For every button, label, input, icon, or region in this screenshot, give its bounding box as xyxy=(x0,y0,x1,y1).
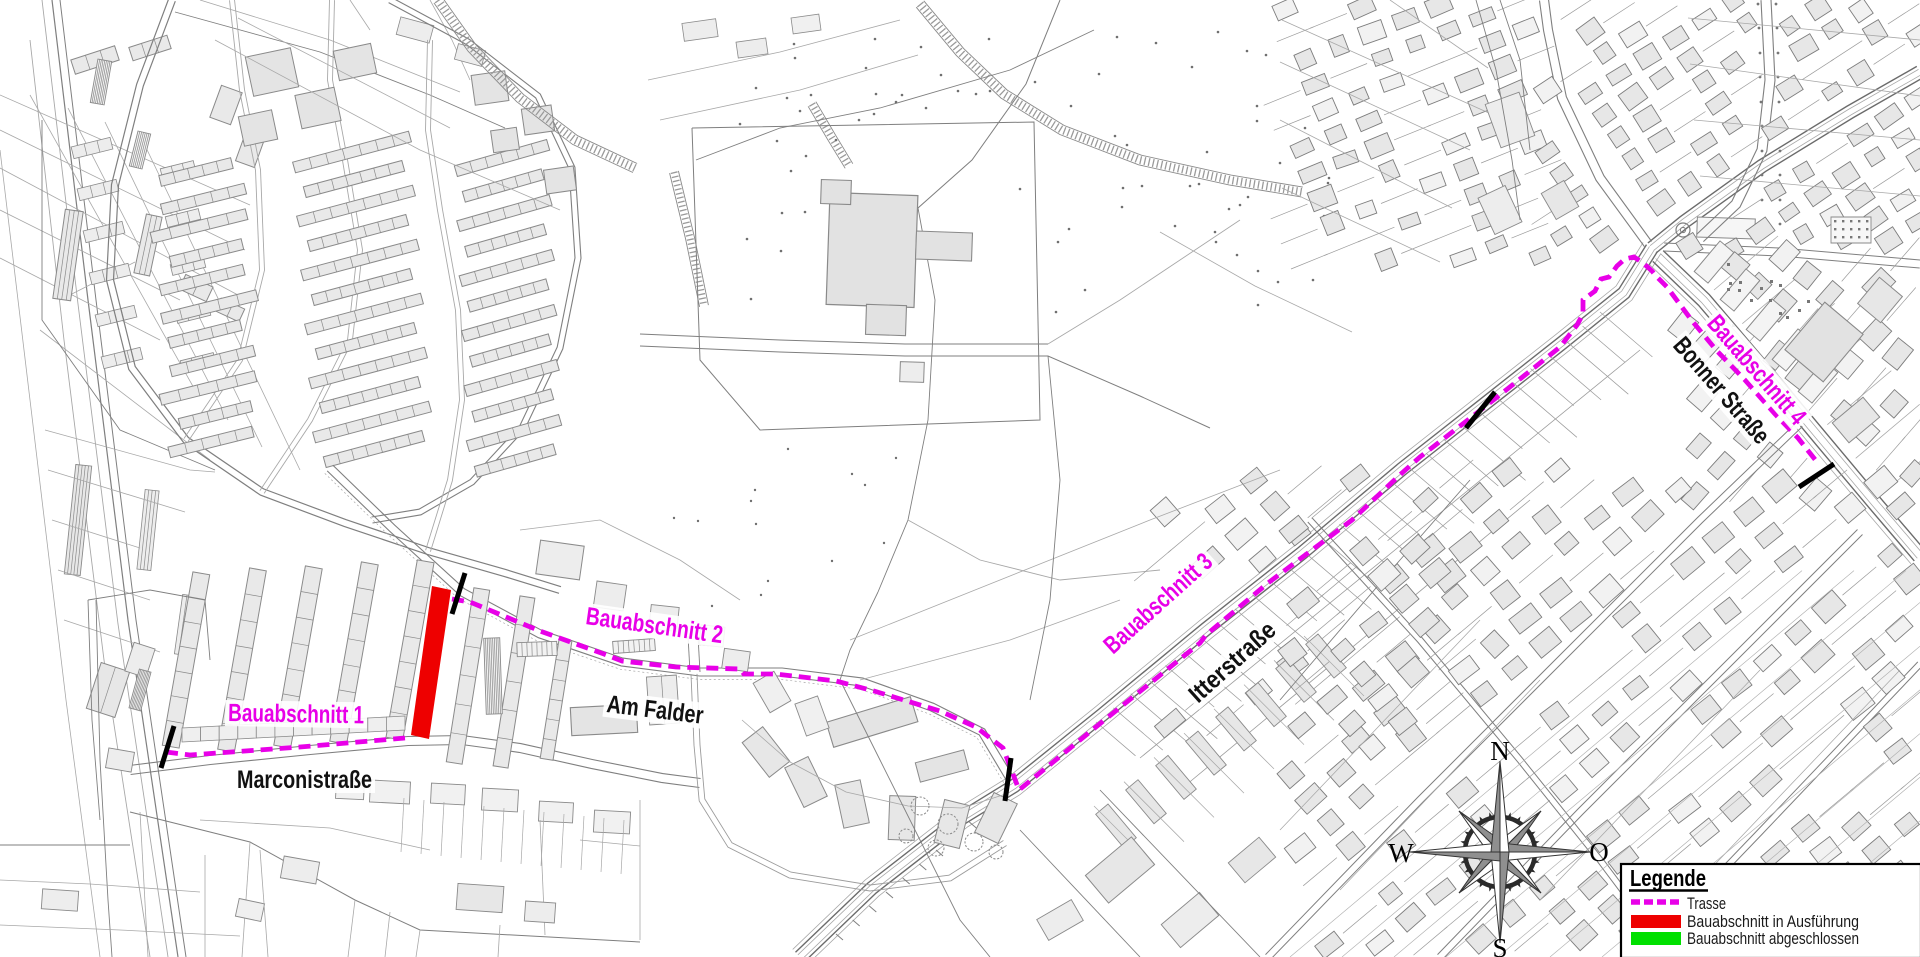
svg-text:Trasse: Trasse xyxy=(1687,894,1726,913)
svg-text:Legende: Legende xyxy=(1630,865,1706,891)
svg-text:O: O xyxy=(1589,837,1609,867)
svg-text:Bauabschnitt 1: Bauabschnitt 1 xyxy=(228,699,365,729)
svg-text:Bauabschnitt abgeschlossen: Bauabschnitt abgeschlossen xyxy=(1687,929,1859,948)
svg-text:W: W xyxy=(1388,838,1414,868)
svg-text:N: N xyxy=(1490,736,1510,766)
svg-text:Marconistraße: Marconistraße xyxy=(237,766,372,794)
svg-text:S: S xyxy=(1492,933,1507,957)
